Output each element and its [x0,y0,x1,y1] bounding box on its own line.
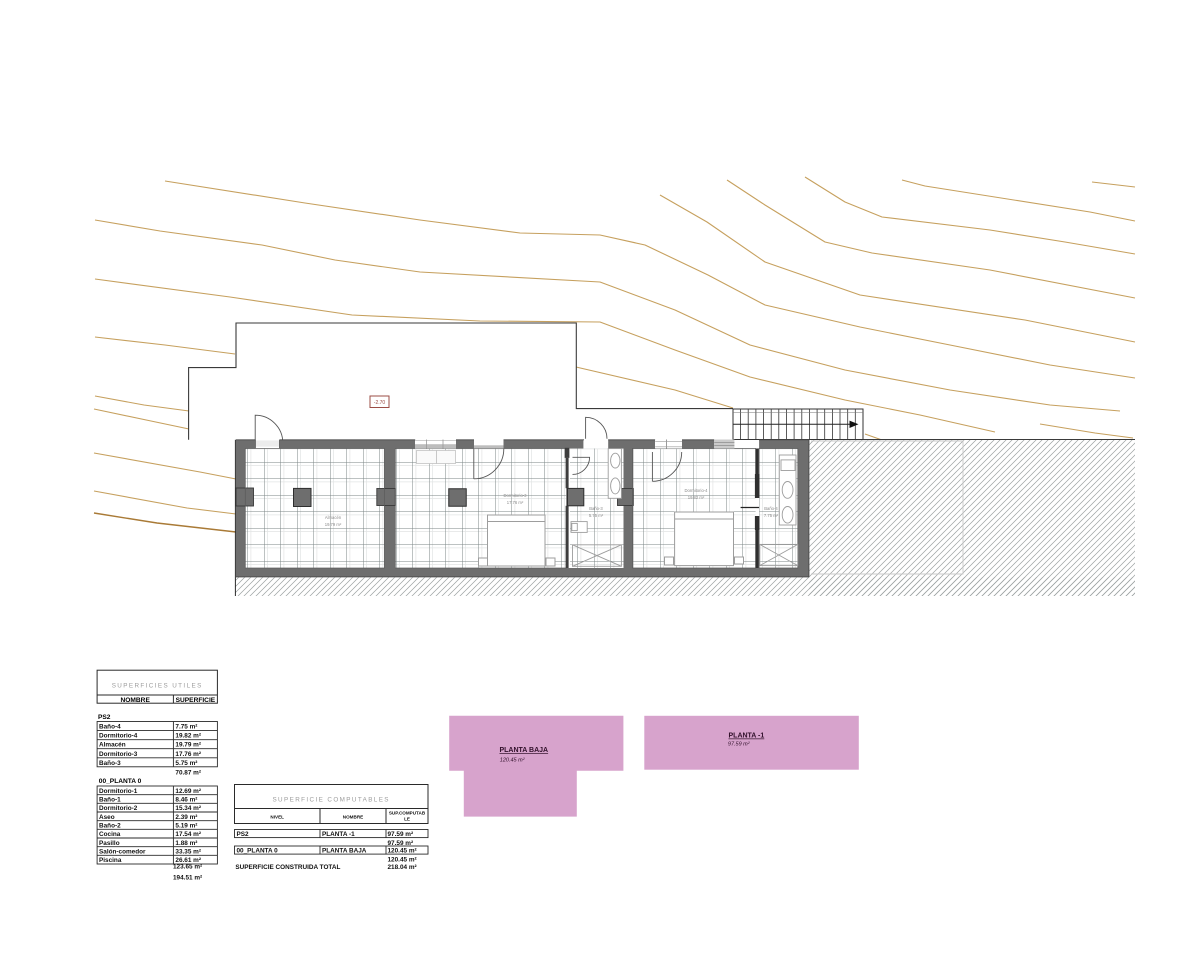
svg-text:19.79 m²: 19.79 m² [175,742,201,749]
svg-text:Dormitorio-3: Dormitorio-3 [99,751,138,758]
svg-text:LE: LE [404,817,410,822]
svg-text:194.51 m²: 194.51 m² [173,875,202,882]
svg-text:Baño-4: Baño-4 [99,724,121,731]
svg-text:Dormitorio-4: Dormitorio-4 [684,488,708,493]
svg-text:PS2: PS2 [98,714,111,721]
svg-text:SUPERFICIE CONSTRUIDA TOTAL: SUPERFICIE CONSTRUIDA TOTAL [235,864,340,871]
svg-text:PLANTA -1: PLANTA -1 [322,831,355,838]
svg-text:Pasillo: Pasillo [99,840,120,847]
svg-text:Baño-1: Baño-1 [99,797,121,804]
svg-text:Dormitorio-4: Dormitorio-4 [99,733,138,740]
svg-text:SUPERFICIE COMPUTABLES: SUPERFICIE COMPUTABLES [272,797,389,804]
svg-text:19.82 m²: 19.82 m² [688,495,705,500]
svg-text:SUPERFICIES UTILES: SUPERFICIES UTILES [112,683,203,690]
svg-text:00_PLANTA 0: 00_PLANTA 0 [237,848,279,855]
svg-text:97.59 m²: 97.59 m² [388,831,414,838]
svg-text:Dormitorio-3: Dormitorio-3 [503,493,527,498]
svg-text:Baño-3: Baño-3 [589,506,603,511]
svg-text:15.34 m²: 15.34 m² [175,805,201,812]
svg-text:Baño-2: Baño-2 [99,823,121,830]
svg-text:1.88 m²: 1.88 m² [175,840,197,847]
svg-text:5.19 m²: 5.19 m² [175,823,197,830]
svg-text:5.75 m²: 5.75 m² [589,513,604,518]
svg-text:SUPERFICIE: SUPERFICIE [176,697,216,704]
svg-text:7.75 m²: 7.75 m² [764,513,779,518]
svg-text:120.45 m²: 120.45 m² [388,856,417,863]
svg-text:120.45 m²: 120.45 m² [388,848,417,855]
svg-text:Baño-4: Baño-4 [764,506,778,511]
svg-text:NOMBRE: NOMBRE [343,815,363,820]
svg-text:12.69 m²: 12.69 m² [175,788,201,795]
svg-text:Cocina: Cocina [99,831,121,838]
svg-text:17.76 m²: 17.76 m² [507,500,524,505]
svg-text:NIVEL: NIVEL [270,815,284,820]
svg-text:123.65 m²: 123.65 m² [173,864,202,871]
svg-text:8.46 m²: 8.46 m² [175,797,197,804]
svg-text:17.54 m²: 17.54 m² [175,831,201,838]
svg-text:SUP.COMPUTAB: SUP.COMPUTAB [389,811,426,816]
svg-text:Almacén: Almacén [99,742,126,749]
svg-text:PLANTA -1: PLANTA -1 [729,733,765,740]
svg-text:NOMBRE: NOMBRE [121,697,151,704]
svg-text:70.87 m²: 70.87 m² [175,770,201,777]
svg-text:218.04 m²: 218.04 m² [388,864,417,871]
svg-text:5.75 m²: 5.75 m² [175,760,197,767]
svg-text:Salón-comedor: Salón-comedor [99,849,146,856]
svg-text:17.76 m²: 17.76 m² [175,751,201,758]
svg-text:19.79 m²: 19.79 m² [325,522,342,527]
svg-text:97.59 m²: 97.59 m² [728,742,750,748]
svg-text:Dormitorio-1: Dormitorio-1 [99,788,138,795]
svg-text:00_PLANTA 0: 00_PLANTA 0 [99,778,142,785]
svg-text:Baño-3: Baño-3 [99,760,121,767]
svg-text:Aseo: Aseo [99,814,115,821]
svg-text:Almacén: Almacén [325,515,342,520]
svg-text:120.45 m²: 120.45 m² [500,758,525,764]
svg-text:PLANTA BAJA: PLANTA BAJA [499,747,548,754]
svg-text:Dormitorio-2: Dormitorio-2 [99,805,138,812]
svg-text:PLANTA BAJA: PLANTA BAJA [322,848,367,855]
svg-text:Piscina: Piscina [99,857,122,864]
svg-text:-2.70: -2.70 [374,400,386,406]
svg-text:33.35 m²: 33.35 m² [175,849,201,856]
svg-text:PS2: PS2 [237,831,250,838]
svg-text:2.39 m²: 2.39 m² [175,814,197,821]
svg-text:19.82 m²: 19.82 m² [175,733,201,740]
svg-text:7.75 m²: 7.75 m² [175,724,197,731]
